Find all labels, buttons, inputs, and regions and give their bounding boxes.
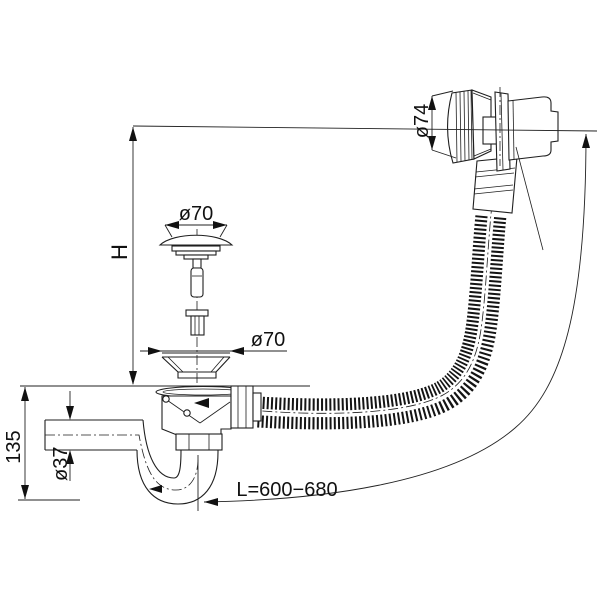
plug-ring-2	[176, 251, 216, 255]
dimension-plug-diameter-70: ø70	[165, 203, 227, 237]
knob-hub	[483, 117, 497, 144]
dim-135-label: 135	[3, 430, 25, 463]
bathtub-drain-technical-drawing: H 135 ø37 ø70 ø70 ø74	[0, 0, 600, 600]
dim-70-strainer-arrow-right	[230, 347, 244, 355]
h-label: H	[107, 244, 132, 260]
h-arrow-down	[129, 371, 137, 385]
strainer-bowl	[162, 353, 230, 378]
hose-length-curve	[204, 134, 586, 502]
dim-74-label: ø74	[411, 104, 433, 138]
nut-collar	[253, 393, 261, 421]
drain-body	[156, 386, 261, 435]
dim-70-plug-tick-left	[165, 225, 172, 237]
dim-74-tick-top	[432, 91, 453, 96]
dimension-hose-length: L=600−680	[204, 134, 590, 506]
dimension-pipe-diameter-37: ø37	[50, 391, 74, 481]
bush-flange	[186, 310, 208, 316]
dim-37-arrow-down	[66, 406, 74, 420]
trap-hex-nut	[176, 434, 222, 450]
plug-stem	[193, 259, 201, 268]
plug-pin	[191, 268, 203, 297]
dim-70-strainer-arrow-left	[148, 347, 162, 355]
overflow-body	[508, 97, 558, 160]
screw-bush	[186, 310, 208, 335]
drain-housing	[162, 396, 231, 435]
trap-outer-bend	[137, 450, 218, 504]
bush-body	[191, 316, 204, 335]
dim-37-label: ø37	[50, 447, 72, 481]
overflow-assembly	[448, 87, 558, 250]
housing-screw-1	[163, 396, 169, 402]
dim-135-arrow-up	[21, 387, 29, 401]
plug-ring-1	[172, 246, 220, 251]
flow-direction-arrow	[149, 485, 162, 493]
compression-nut	[231, 386, 253, 428]
hose-length-label: L=600−680	[236, 479, 337, 501]
dim-70-strainer-label: ø70	[251, 329, 285, 351]
overflow-cable-line	[516, 147, 543, 250]
hose-highlight-band	[258, 215, 491, 414]
dimension-height-h: H	[107, 127, 137, 385]
hose-length-arrow-left	[204, 498, 218, 506]
technical-drawing-canvas: H 135 ø37 ø70 ø70 ø74	[0, 0, 600, 600]
housing-screw-2	[184, 410, 190, 416]
dimension-strainer-diameter-70: ø70	[140, 329, 287, 355]
dim-70-plug-tick-right	[220, 225, 227, 237]
plug-cap	[160, 235, 232, 245]
bowl-outer-wall	[162, 357, 230, 378]
dim-135-arrow-down	[21, 485, 29, 499]
dim-70-plug-label: ø70	[179, 203, 213, 225]
dimension-trap-height-135: 135	[3, 387, 29, 499]
h-arrow-up	[129, 127, 137, 141]
hose-length-arrow-top	[582, 134, 590, 148]
plug-ring-3	[184, 255, 208, 259]
flexible-hose	[209, 163, 497, 414]
